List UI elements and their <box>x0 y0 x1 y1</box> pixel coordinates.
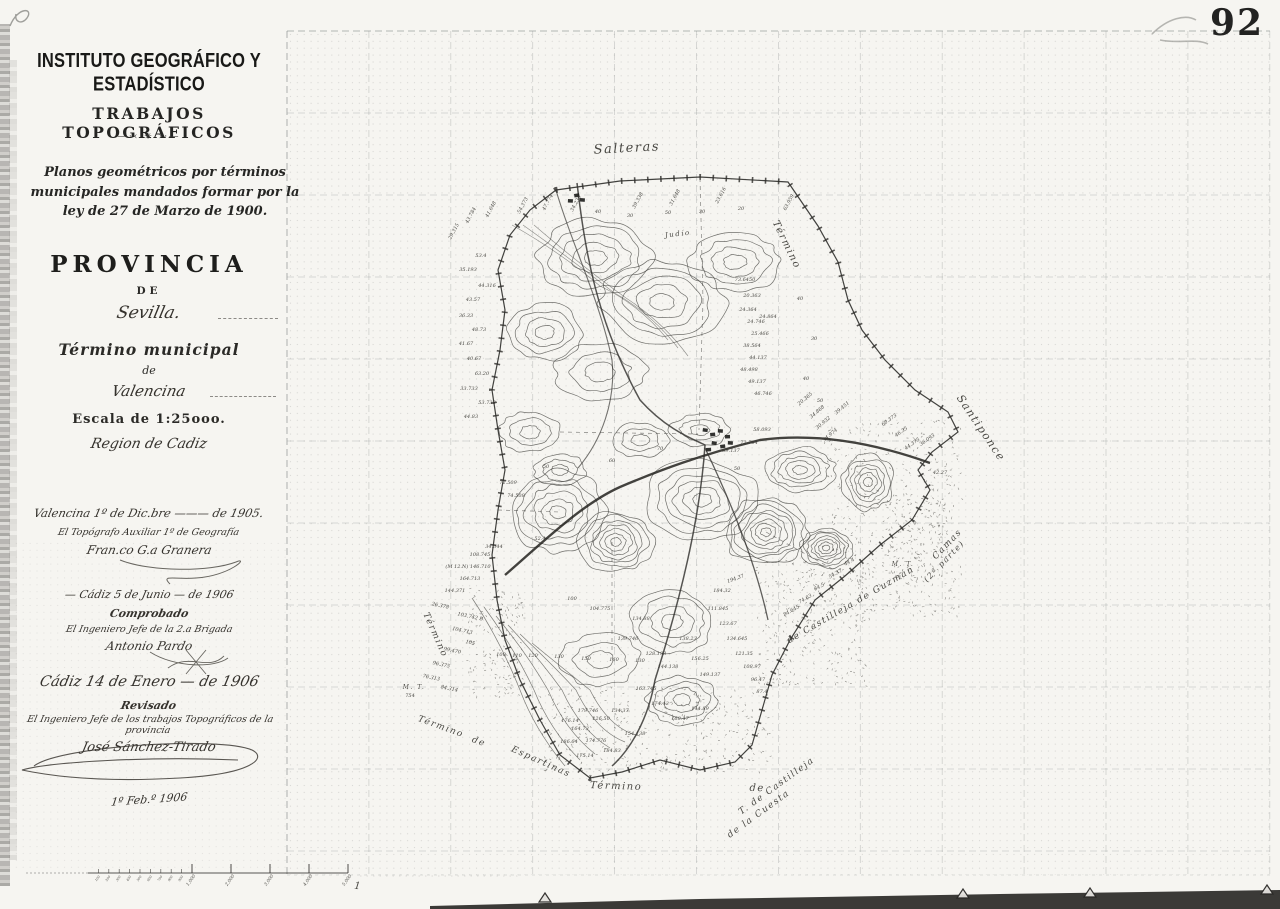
spot-height-label: 184.83 <box>603 748 621 754</box>
spot-height-label: 64.5 <box>813 582 826 593</box>
spot-height-label: 110 <box>512 653 522 659</box>
spot-height-label: 194.37 <box>726 573 745 585</box>
spot-height-label: 144.138 <box>658 664 679 670</box>
spot-height-label: 44.83 <box>463 414 478 420</box>
spot-height-label: 99.470 <box>443 646 462 656</box>
spot-height-label: 63.959 <box>782 193 796 212</box>
cert2-status: Comprobado <box>8 607 290 620</box>
spot-height-label: 24.864 <box>758 314 777 320</box>
scale-major-label: 3.000 <box>263 873 275 887</box>
spot-height-label: 76.313 <box>422 673 440 683</box>
province-label: PROVINCIA <box>8 251 290 278</box>
spot-height-label: 30 <box>811 336 818 342</box>
spot-height-label: 54.373 <box>516 196 530 214</box>
spot-height-label: 69.137 <box>722 448 740 454</box>
scale-text: Escala de 1:25ooo. <box>8 412 290 427</box>
sheet-number: 92 <box>1210 2 1264 44</box>
spot-height-label: 144.371 <box>445 588 466 594</box>
spot-height-label: 44.4 <box>842 557 856 568</box>
cert2-role: El Ingeniero Jefe de la 2.a Brigada <box>8 624 290 635</box>
spot-height-label: 25.466 <box>750 331 769 337</box>
spot-height-label: 39.338 <box>631 191 645 209</box>
law-note: Planos geométricos por términos municipa… <box>8 163 322 222</box>
spot-height-label: 46.746 <box>753 391 772 397</box>
place-label: Término <box>420 611 450 659</box>
spot-height-label: 138.23 <box>679 636 697 642</box>
spot-height-label: 168.47 <box>671 716 689 722</box>
spot-height-label: 42.27 <box>932 470 948 476</box>
spot-height-label: 123.67 <box>719 621 737 627</box>
scale-minor-label: 400 <box>125 875 132 883</box>
spot-height-label: 174.776 <box>586 738 607 744</box>
spot-height-label: 105 <box>465 639 476 647</box>
spot-height-label: 164.73 <box>571 726 589 732</box>
cert2-signature: Antonio Pardo <box>8 639 290 653</box>
pencil-mark: 1 <box>354 881 361 893</box>
province-name: Sevilla. <box>8 303 290 323</box>
spot-height-label: 41.67 <box>458 341 474 347</box>
spot-height-label: 144.89 <box>691 706 709 712</box>
spot-height-label: 50 <box>817 398 824 404</box>
de-label: de <box>8 364 290 377</box>
place-label: Espartinas <box>509 744 572 780</box>
cert1-signature: Fran.co G.a Granera <box>8 543 290 557</box>
spot-height-label: 150 <box>581 656 591 662</box>
spot-height-label: 36.093 <box>919 433 937 448</box>
graph-paper-dots <box>287 31 1270 875</box>
spot-height-label: 24.746 <box>746 319 765 325</box>
place-label: Santiponce <box>954 392 1008 464</box>
survey-triangle-icon <box>1261 885 1273 894</box>
scale-minor-label: 300 <box>115 875 122 882</box>
spot-height-label: 48.498 <box>739 367 758 373</box>
spot-height-label: 58.093 <box>753 427 771 433</box>
cert3-status: Revisado <box>8 699 290 712</box>
spot-height-label: 43.57 <box>465 297 481 303</box>
place-label: Término <box>416 713 465 740</box>
spot-height-label: 134.88 <box>632 616 650 622</box>
spot-height-label: 160 <box>609 657 619 663</box>
spot-height-label: 34.868 <box>809 404 826 420</box>
spot-height-label: 73.6450 <box>735 277 756 283</box>
spot-height-label: 24.364 <box>738 307 757 313</box>
scale-minor-label: 500 <box>136 875 143 882</box>
spot-height-label: 44.316 <box>477 283 496 289</box>
survey-triangle-icon <box>957 889 969 898</box>
pencil-date-note: 1º Feb.º 1906 <box>8 783 290 816</box>
spot-height-label: 41.648 <box>484 200 498 219</box>
spot-height-label: 96.47 <box>751 677 766 683</box>
spot-height-label: 49.137 <box>747 379 766 385</box>
cert2-place-date: — Cádiz 5 de Junio — de 1906 <box>8 588 290 601</box>
scanned-map-sheet: 43.78441.64854.37347.77434.23639.33831.6… <box>0 0 1280 909</box>
place-label: de <box>470 735 487 749</box>
spot-height-label: 174.43 <box>651 701 669 707</box>
spot-height-label: 134.645 <box>727 636 748 642</box>
municipality-name: Valencina <box>8 382 290 400</box>
spot-height-label: 50 <box>665 210 672 216</box>
cert1-role: El Topógrafo Auxiliar 1º de Geografía <box>8 527 290 538</box>
scale-major-label: 2.000 <box>223 873 236 888</box>
municipality-label: Término municipal <box>8 340 290 359</box>
spot-height-label: 29.315 <box>447 222 461 241</box>
spot-height-label: 52.4 <box>534 536 545 542</box>
spot-height-label: 175.14 <box>576 753 594 759</box>
scale-minor-label: 100 <box>94 875 101 882</box>
spot-height-label: 84.645 <box>782 604 800 618</box>
spot-height-label: 20.363 <box>742 293 761 299</box>
ornament-divider: ―·‹ ✳ ›·― <box>8 132 290 142</box>
spot-height-label: 163.745 <box>636 686 657 692</box>
spot-height-label: 103.742 B <box>457 611 484 622</box>
spot-height-label: 43.784 <box>464 206 478 225</box>
spot-height-label: 20.365 <box>796 391 814 407</box>
spot-height-label: 48.73 <box>471 327 486 333</box>
spot-height-label: 186.64 <box>560 739 578 745</box>
spot-height-label: 156.25 <box>691 656 709 662</box>
spot-height-label: 104.775 <box>590 606 611 612</box>
de-label: DE <box>8 285 290 297</box>
scale-minor-label: 200 <box>104 875 111 883</box>
spot-height-label: 108.97 <box>743 664 761 670</box>
spot-height-label: 34.236 <box>569 194 583 213</box>
scale-minor-label: 900 <box>177 875 184 882</box>
spot-height-label: 60 <box>609 458 616 464</box>
spot-height-label: 35.193 <box>459 267 477 273</box>
spot-height-label: 38.564 <box>743 343 761 349</box>
spot-height-label: 40 <box>594 209 602 215</box>
spot-height-label: 47.774 <box>541 193 555 212</box>
place-label: de la Cuesta <box>726 788 792 840</box>
spot-height-label: 46.35 <box>893 426 909 440</box>
spot-height-label: 74.63 <box>798 593 813 605</box>
spot-height-label: 33.733 <box>460 386 478 392</box>
spot-height-label: 154.138 <box>625 731 646 737</box>
spot-height-label: 20 <box>737 206 745 212</box>
scale-major-label: 5.000 <box>341 873 353 887</box>
survey-triangle-icon <box>1084 888 1096 897</box>
spot-height-label: 121.35 <box>735 651 753 657</box>
spot-height-label: 120 <box>528 653 538 659</box>
spot-height-label: 74.508 <box>507 493 525 499</box>
spot-height-label: 184.32 <box>713 588 731 594</box>
spot-height-label: 50 <box>543 464 550 470</box>
place-label: Salteras <box>593 139 660 157</box>
ruled-dashes <box>218 318 278 319</box>
spot-height-label: 30 <box>627 213 634 219</box>
spot-height-label: 34.344 <box>485 544 503 550</box>
spot-height-label: 179.746 <box>578 708 599 714</box>
spot-height-label: 30 <box>699 209 706 215</box>
spot-height-label: 72.764 <box>740 440 758 446</box>
spot-height-label: 44.375 <box>903 437 922 453</box>
scale-minor-label: 600 <box>146 875 153 882</box>
spot-height-label: 30.932 <box>815 415 832 431</box>
scale-minor-label: 800 <box>167 875 174 882</box>
place-label: Camas <box>931 527 965 561</box>
cert1-place-date: Valencina 1º de Dic.bre ——— de 1905. <box>8 506 290 520</box>
spot-height-label: 34.974 <box>822 427 839 443</box>
spot-height-label: 126.50 <box>592 716 610 722</box>
spot-height-label: (M 12.N) 146.710 <box>445 563 491 570</box>
ruled-dashes <box>210 396 276 397</box>
cert3-place-date: Cádiz 14 de Enero — de 1906 <box>8 674 290 690</box>
spot-height-label: 40 <box>796 296 804 302</box>
spot-height-label: 72.509 <box>499 480 517 486</box>
spot-height-label: 53.733 <box>478 400 496 406</box>
region-text: Region de Cadiz <box>8 436 290 452</box>
scale-major-label: 4.000 <box>301 873 314 888</box>
spot-height-label: 130 <box>635 658 645 664</box>
place-label: Término <box>770 219 803 271</box>
spot-height-label: 130 <box>554 654 564 660</box>
spot-height-label: 104.713 <box>451 626 472 636</box>
spot-height-label: 164.713 <box>460 576 481 582</box>
place-label: T. de Castilleja <box>737 756 816 818</box>
spot-height-label: 23.616 <box>714 186 728 206</box>
spot-height-label: 100 <box>567 596 577 602</box>
spot-height-label: 70 <box>657 446 664 452</box>
place-label: Judío <box>663 229 691 240</box>
spot-height-label: 111.845 <box>708 606 729 612</box>
place-label: M. T. <box>891 561 915 568</box>
spot-height-label: 26.378 <box>430 601 449 611</box>
spot-height-label: 63.20 <box>475 371 490 377</box>
spot-height-label: 100 <box>496 652 506 658</box>
spot-height-label: 128.193 <box>646 651 667 657</box>
spot-height-label: 36.33 <box>459 313 473 319</box>
place-label: M. T. <box>402 684 426 691</box>
place-label: de <box>749 783 765 795</box>
spot-height-label: 754 <box>405 693 415 699</box>
spot-height-label: 134.37 <box>611 708 629 714</box>
spot-height-label: 139.746 <box>618 636 639 642</box>
scale-major-label: 1.000 <box>185 873 197 887</box>
spot-height-label: 84.314 <box>440 684 458 694</box>
place-label: Término <box>590 780 643 793</box>
spot-height-label: 50 <box>734 466 741 472</box>
spot-height-label: 149.137 <box>700 672 721 678</box>
scale-minor-label: 700 <box>157 875 164 882</box>
spot-height-label: 44.137 <box>748 355 767 361</box>
spot-height-label: 108.745 <box>470 552 491 558</box>
place-label: de Castilleja de Guzmán <box>785 564 916 646</box>
spot-height-label: 60.373 <box>881 413 899 428</box>
cert3-signature: José Sánchez-Tirado <box>8 740 290 755</box>
spot-height-label: 53.4 <box>475 253 486 259</box>
spot-height-label: 40.67 <box>466 356 482 362</box>
spot-height-label: 40 <box>802 376 810 382</box>
spot-height-label: 176.14 <box>561 718 579 724</box>
spot-height-label: 31.648 <box>668 188 682 206</box>
spot-height-label: 39.451 <box>834 400 851 416</box>
spot-height-label: 54.37 <box>828 568 844 581</box>
spot-height-label: 96.375 <box>432 660 450 670</box>
institution-title: INSTITUTO GEOGRÁFICO Y ESTADÍSTICO <box>8 50 290 96</box>
place-label: (2ª parte) <box>922 539 966 584</box>
cert3-role: El Ingeniero Jefe de los trabajos Topogr… <box>8 714 290 736</box>
spot-height-label: 87.4 <box>756 689 767 695</box>
survey-triangle-icon <box>539 893 551 902</box>
